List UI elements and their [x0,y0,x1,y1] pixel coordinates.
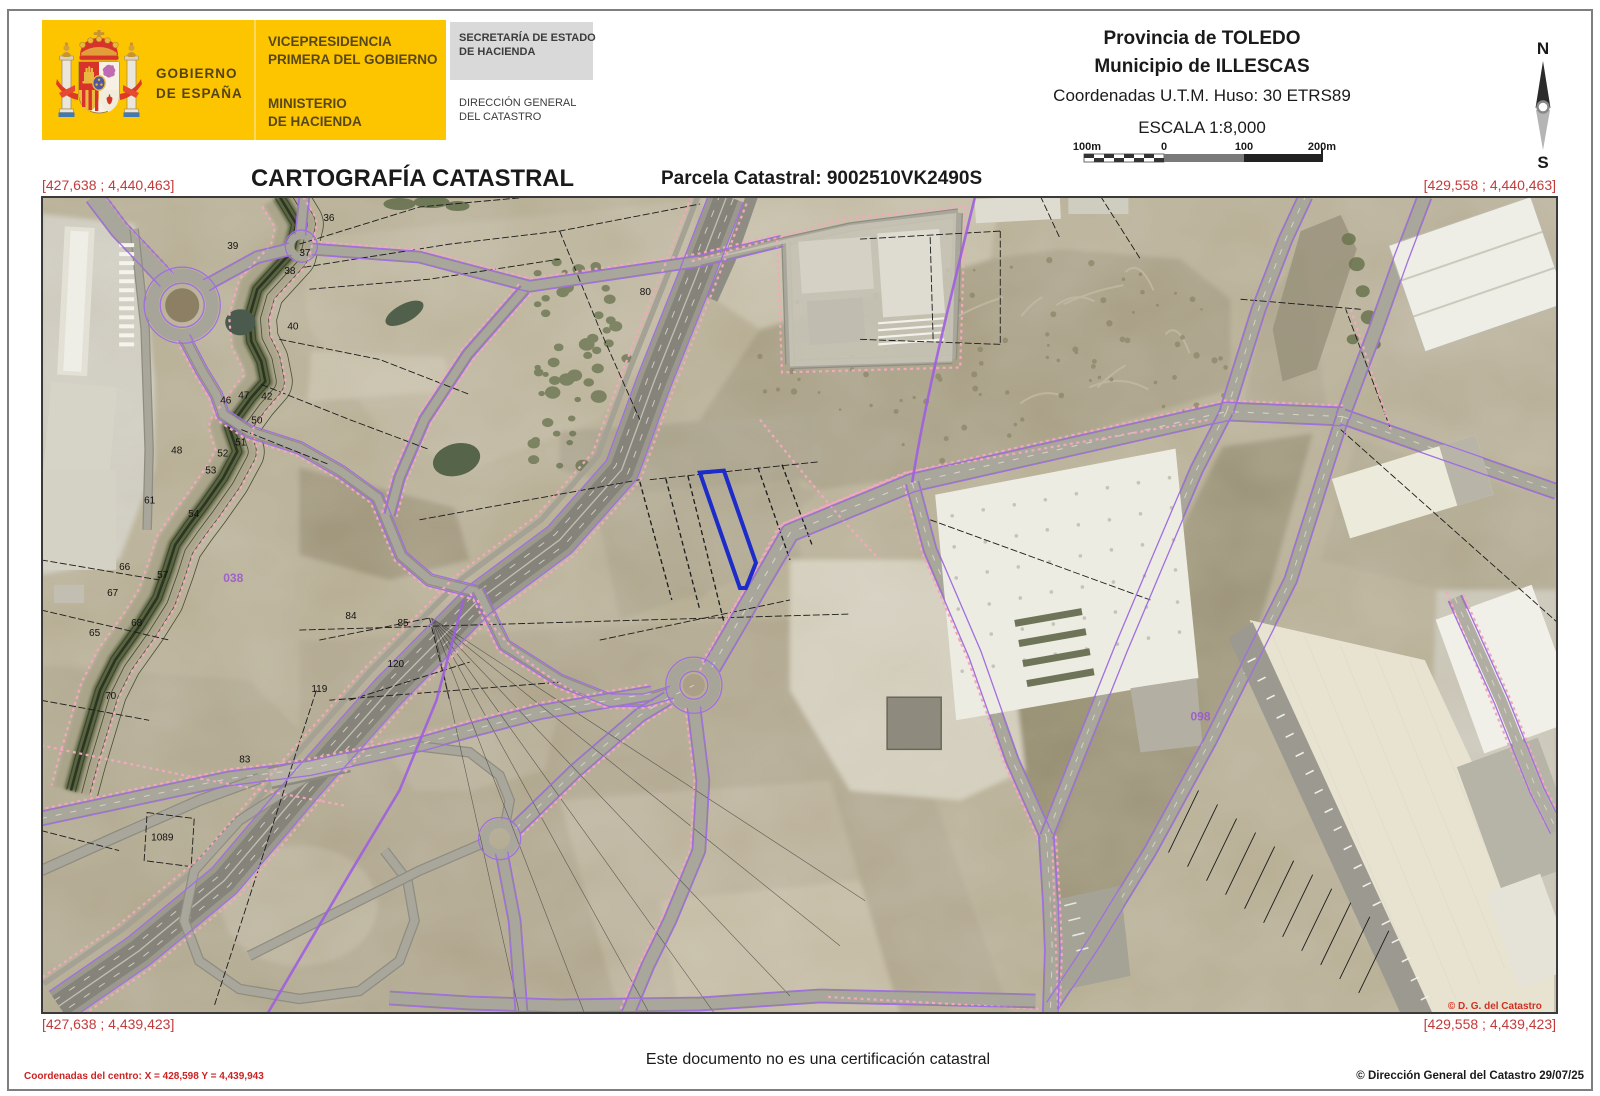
svg-text:100m: 100m [1073,141,1101,153]
svg-text:N: N [1537,39,1549,58]
svg-text:100: 100 [1235,141,1253,153]
svg-text:0: 0 [1161,141,1167,153]
svg-text:S: S [1537,153,1548,172]
